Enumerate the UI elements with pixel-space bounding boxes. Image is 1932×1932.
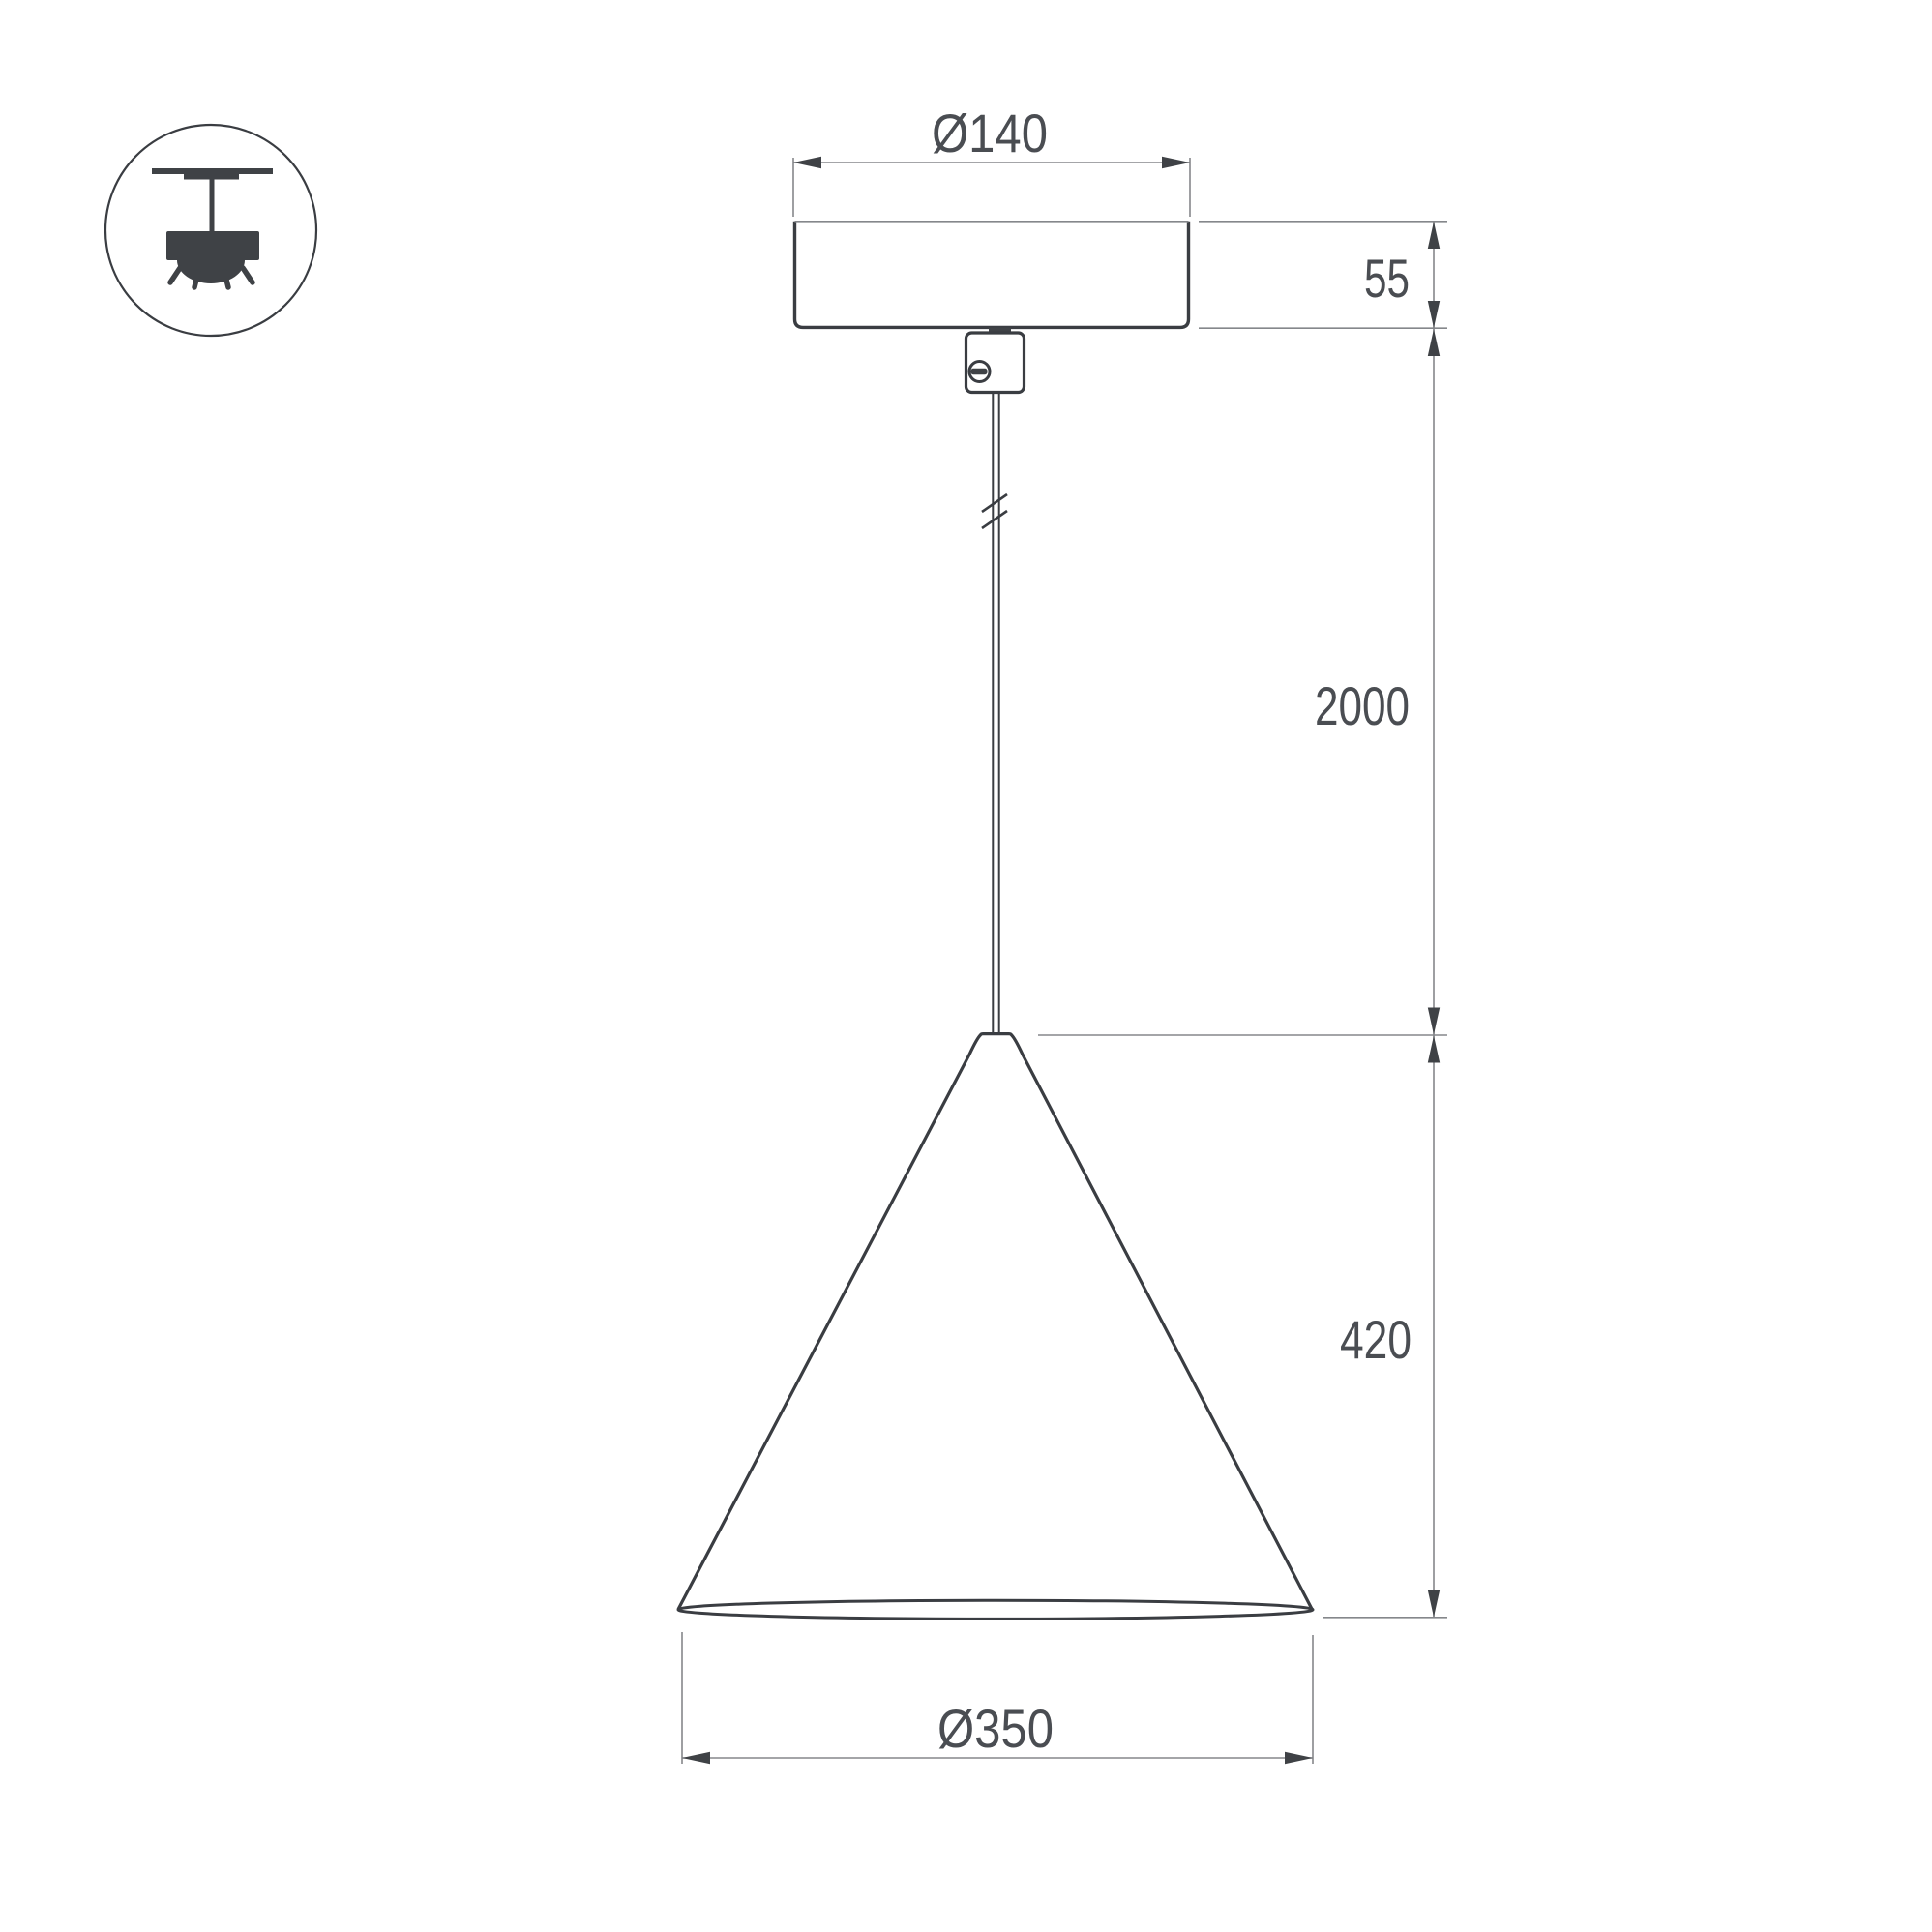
suspension-length-label: 2000: [1315, 675, 1410, 736]
arrow-down-icon: [1428, 301, 1440, 328]
icon-suspension-stem: [210, 176, 215, 234]
shade-diameter-label: Ø350: [937, 1698, 1054, 1759]
pendant-lamp-technical-drawing: Ø140 55 2000 420: [0, 0, 1932, 1932]
icon-lamp-body: [166, 231, 259, 260]
cable-break-slash: [982, 494, 1007, 512]
dimension-canopy-height: 55: [1199, 222, 1447, 328]
arrow-right-icon: [1285, 1752, 1313, 1764]
light-ray-icon: [170, 268, 180, 282]
canopy-body: [795, 222, 1189, 328]
cone-shade: [678, 1034, 1313, 1611]
arrow-up-icon: [1428, 329, 1440, 356]
canopy-height-label: 55: [1364, 248, 1410, 309]
screw-slot: [971, 369, 988, 374]
cable-break-slash: [982, 511, 1007, 528]
arrow-right-icon: [1162, 157, 1190, 168]
icon-light-dome: [177, 260, 245, 283]
canopy-diameter-label: Ø140: [932, 103, 1048, 163]
arrow-left-icon: [793, 157, 821, 168]
light-ray-icon: [224, 272, 228, 287]
arrow-down-icon: [1428, 1590, 1440, 1618]
arrow-up-icon: [1428, 1036, 1440, 1063]
shade-height-label: 420: [1340, 1309, 1412, 1370]
arrow-up-icon: [1428, 222, 1440, 249]
arrow-left-icon: [682, 1752, 710, 1764]
drawing-canvas: Ø140 55 2000 420: [0, 0, 1932, 1932]
light-ray-icon: [243, 268, 253, 282]
fixture-drawing: [678, 222, 1313, 1620]
dimension-shade-height: 420: [1323, 1035, 1447, 1618]
dimension-canopy-diameter: Ø140: [793, 103, 1190, 217]
light-ray-icon: [194, 272, 198, 287]
pendant-mount-icon: [105, 125, 316, 336]
dimension-suspension-length: 2000: [1038, 328, 1447, 1035]
arrow-down-icon: [1428, 1008, 1440, 1035]
dimension-shade-diameter: Ø350: [682, 1632, 1313, 1764]
cone-bottom-rim: [678, 1600, 1313, 1619]
